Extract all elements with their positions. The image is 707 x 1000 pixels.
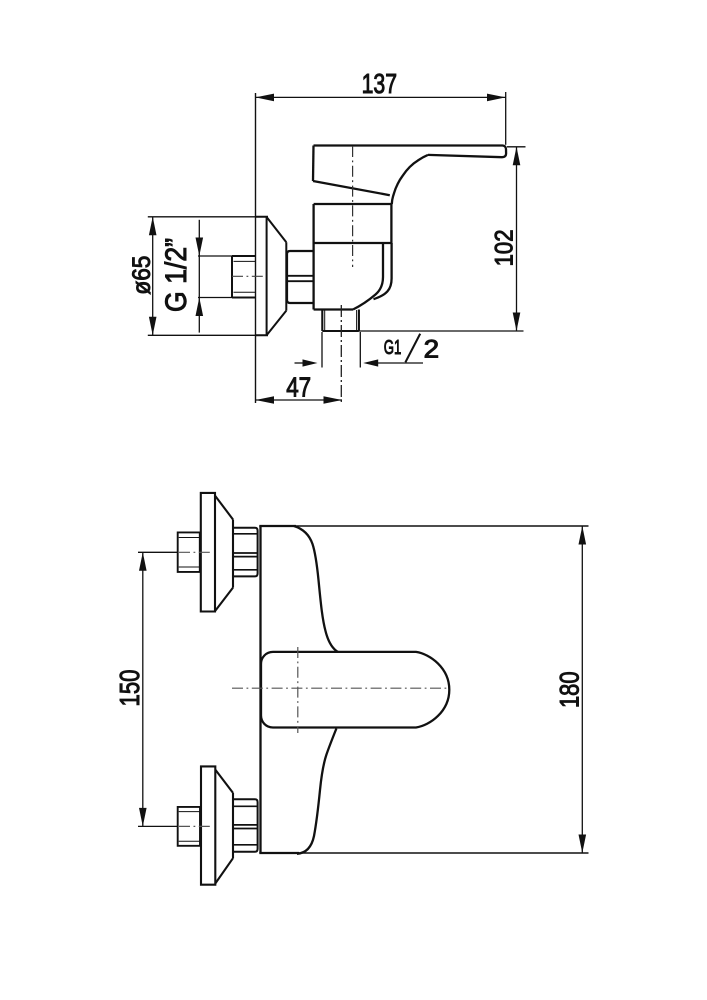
svg-text:102: 102 — [491, 229, 519, 266]
svg-text:G1: G1 — [384, 336, 402, 359]
svg-text:G 1/2”: G 1/2” — [160, 238, 193, 312]
svg-text:2: 2 — [424, 335, 440, 363]
svg-text:137: 137 — [362, 68, 398, 99]
svg-text:ø65: ø65 — [128, 256, 156, 295]
svg-text:150: 150 — [114, 670, 145, 707]
svg-text:180: 180 — [554, 672, 584, 709]
svg-text:47: 47 — [286, 372, 311, 403]
